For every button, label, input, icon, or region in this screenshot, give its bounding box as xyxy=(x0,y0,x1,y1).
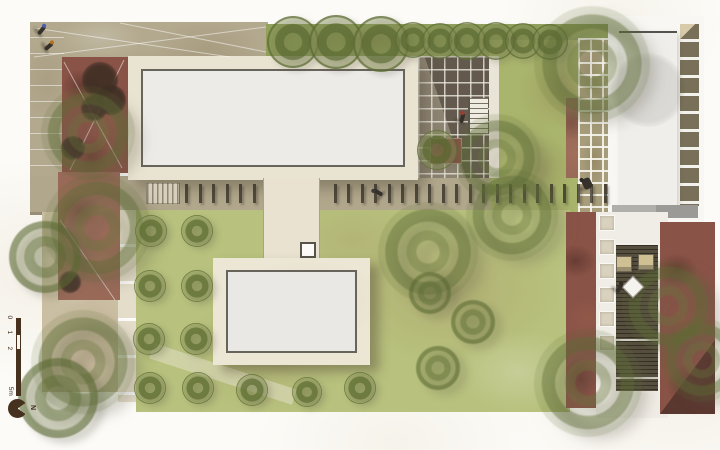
pergola-column xyxy=(604,184,607,203)
tree-canopy xyxy=(451,300,495,344)
plaza-top-band xyxy=(30,22,268,60)
tree-canopy xyxy=(466,169,558,261)
tree-canopy xyxy=(534,329,642,437)
pergola-column xyxy=(428,184,431,203)
tree-canopy xyxy=(236,374,268,406)
building-south xyxy=(213,258,370,365)
tree-canopy xyxy=(135,215,167,247)
stepping-stone xyxy=(599,215,615,231)
scale-label-2: 2 xyxy=(6,346,13,350)
pergola-column xyxy=(185,184,188,203)
pergola-column xyxy=(455,184,458,203)
pergola-column xyxy=(253,184,256,203)
tree-canopy xyxy=(416,346,460,390)
site-plan-canvas: 0 1 2 5m N xyxy=(0,0,720,450)
tree-canopy xyxy=(9,221,81,293)
pergola-column xyxy=(442,184,445,203)
pergola-column xyxy=(199,184,202,203)
tree-canopy xyxy=(181,270,213,302)
building-south-roof xyxy=(226,270,357,353)
pergola-column xyxy=(415,184,418,203)
tree-canopy xyxy=(182,372,214,404)
pergola-column xyxy=(361,184,364,203)
tree-canopy xyxy=(180,323,212,355)
tile-band-far-east xyxy=(680,24,699,206)
scale-label-end: 5m xyxy=(6,387,13,396)
tree-canopy xyxy=(344,372,376,404)
north-arrow: N xyxy=(6,397,40,421)
pergola-column xyxy=(212,184,215,203)
scale-bar: 0 1 2 5m xyxy=(4,308,34,404)
tree-canopy xyxy=(292,377,322,407)
north-label: N xyxy=(29,405,36,410)
tree-canopy xyxy=(417,130,457,170)
north-arrow-disc xyxy=(8,399,27,418)
deck-lounger xyxy=(638,254,654,270)
tile-band-corner xyxy=(680,24,699,39)
tree-canopy xyxy=(133,323,165,355)
pergola-column xyxy=(563,184,566,203)
deck-lounger xyxy=(616,256,632,272)
building-main xyxy=(128,56,418,180)
walkway-ramp xyxy=(146,183,180,204)
tree-canopy xyxy=(534,6,650,122)
scale-label-1: 1 xyxy=(6,330,13,334)
pergola-column xyxy=(401,184,404,203)
pergola-column xyxy=(388,184,391,203)
scale-label-0: 0 xyxy=(6,315,13,319)
entry-path-marker xyxy=(300,242,316,258)
stepping-stone xyxy=(599,263,615,279)
tree-canopy xyxy=(134,270,166,302)
scale-bar-open-segment xyxy=(16,334,21,350)
pergola-column xyxy=(226,184,229,203)
pergola-column xyxy=(347,184,350,203)
pergola-column xyxy=(334,184,337,203)
stepping-stone xyxy=(599,311,615,327)
tree-canopy xyxy=(134,372,166,404)
pergola-column xyxy=(239,184,242,203)
tree-canopy xyxy=(181,215,213,247)
stepping-stone xyxy=(599,239,615,255)
building-main-roof xyxy=(141,69,405,167)
tree-canopy xyxy=(409,272,451,314)
tree-canopy xyxy=(41,86,135,180)
scale-bar-line xyxy=(16,318,21,396)
